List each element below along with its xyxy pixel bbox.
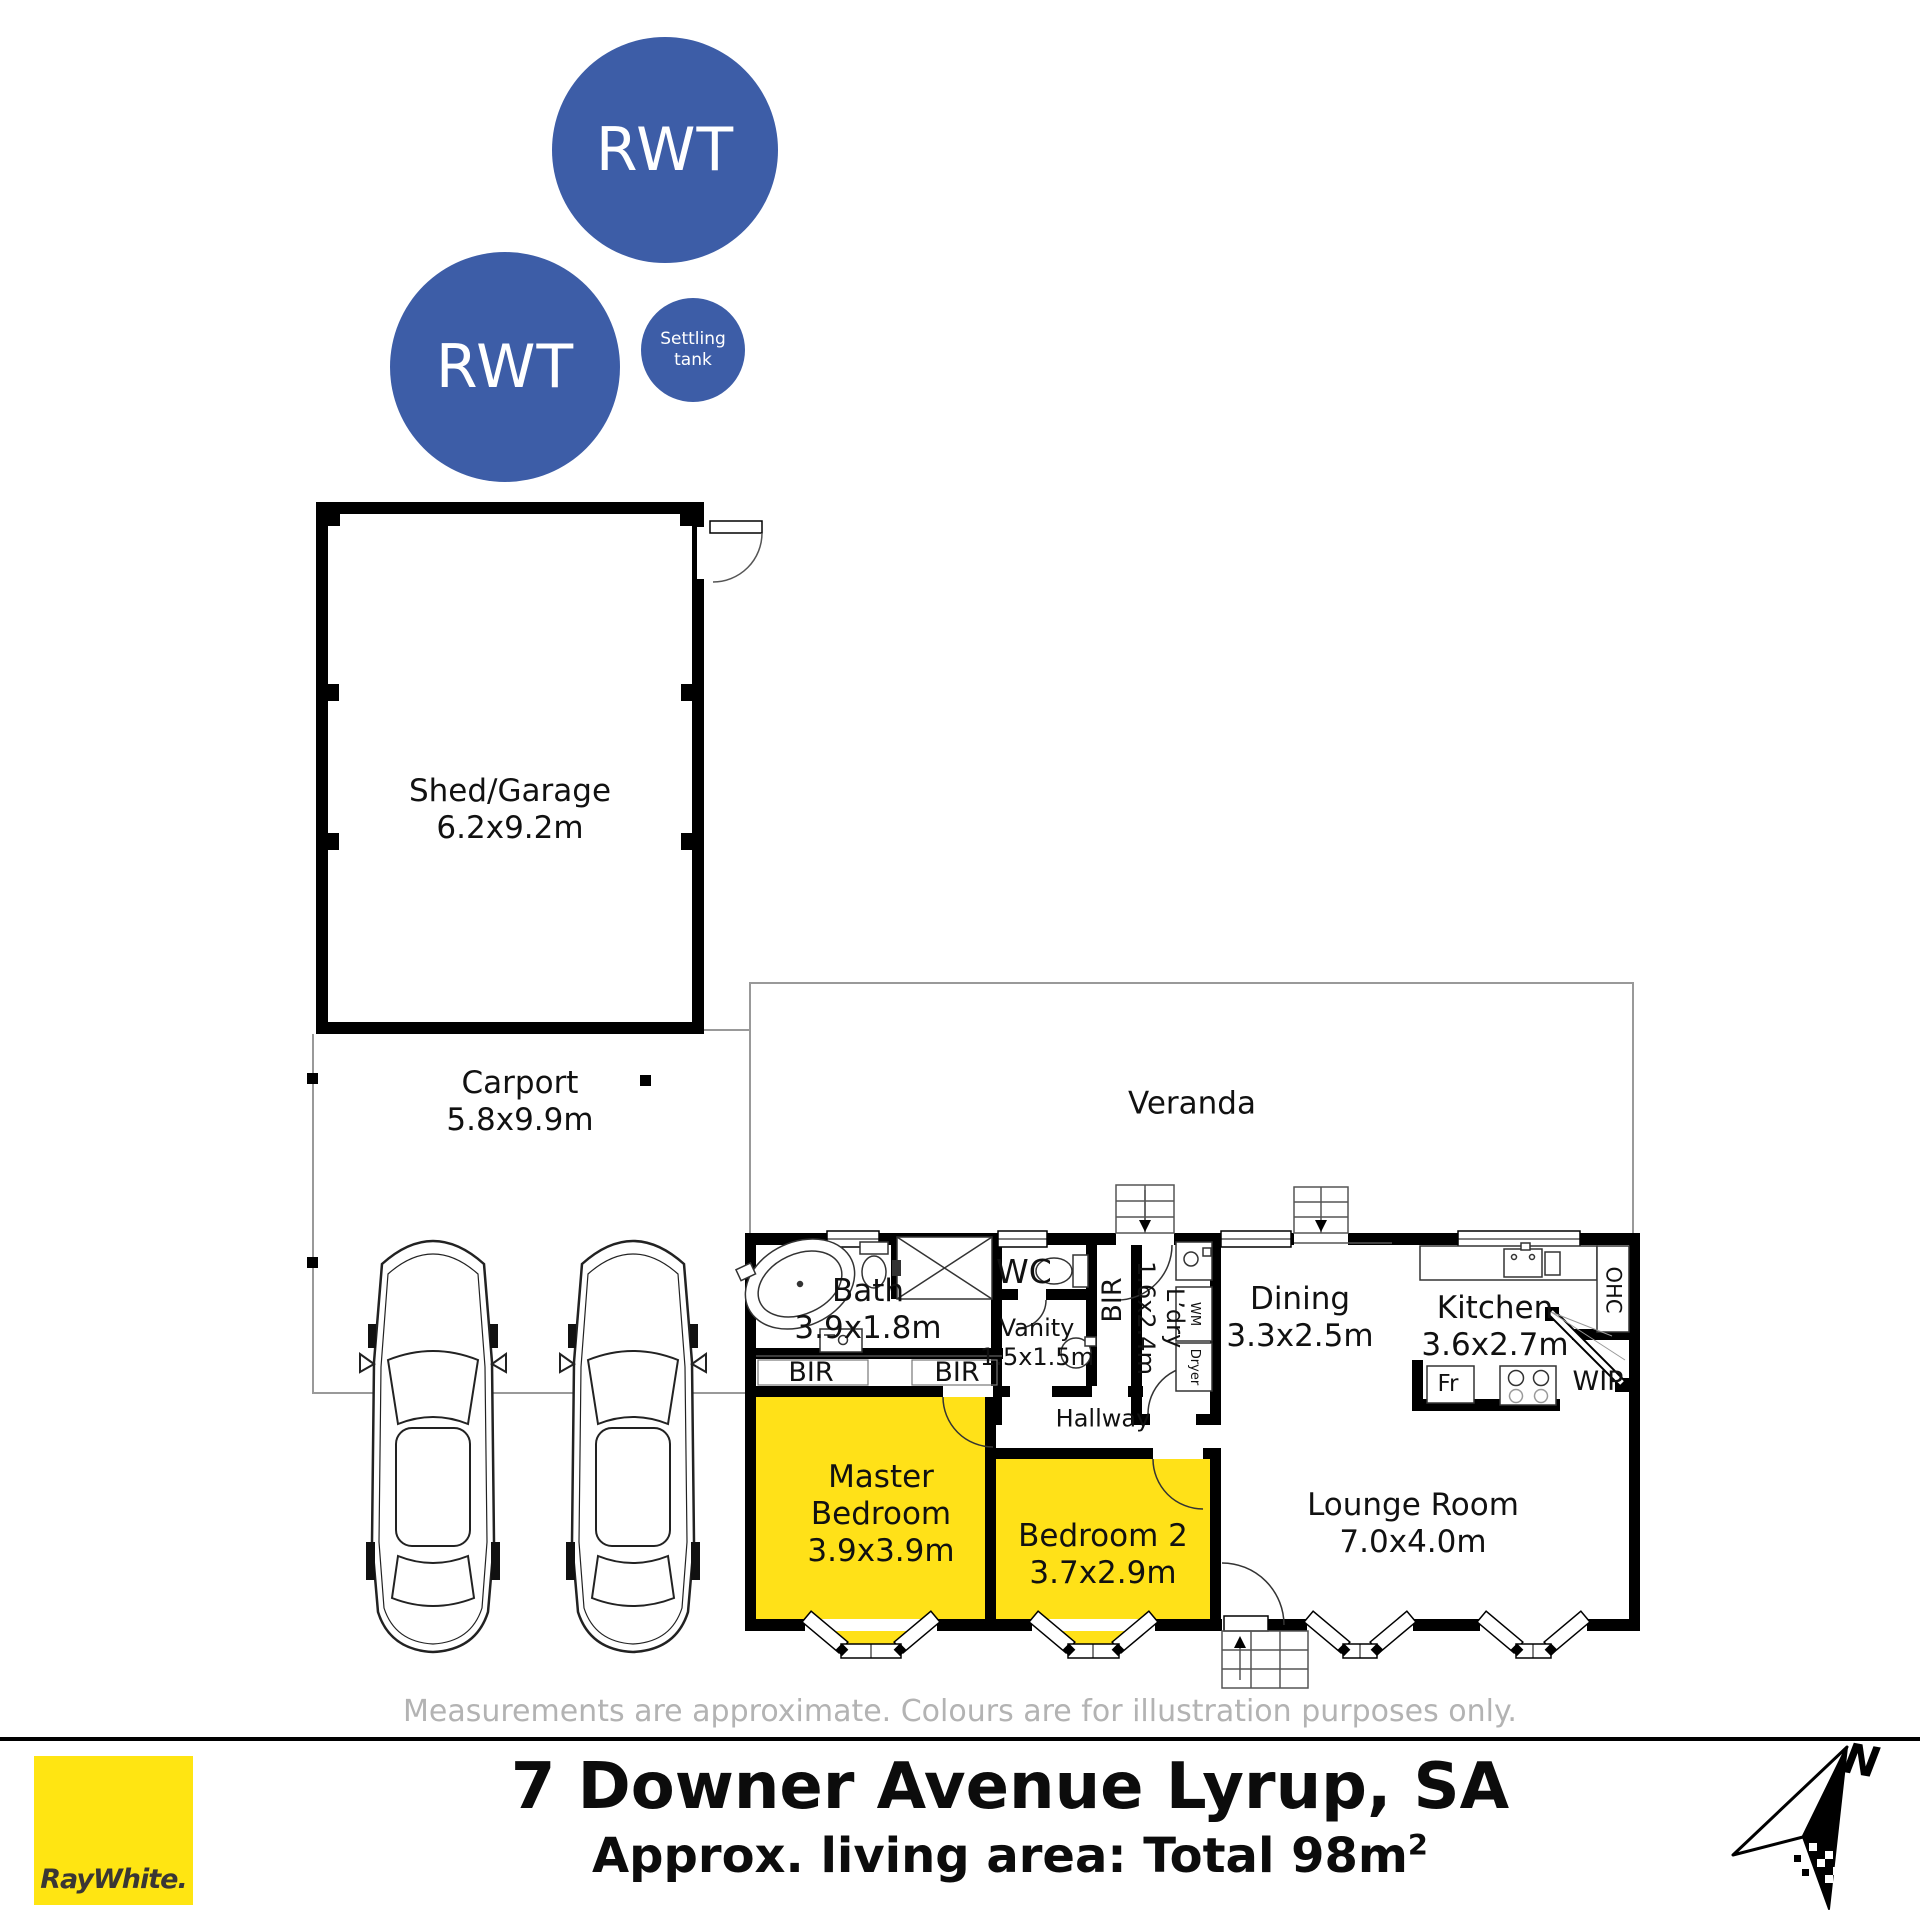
bir-label-3: BIR <box>1097 1277 1129 1322</box>
entry-steps <box>1222 1631 1308 1688</box>
bath-label: Bath 3.9x1.8m <box>794 1273 941 1347</box>
fridge-label: Fr <box>1437 1371 1458 1399</box>
car-left <box>360 1241 506 1652</box>
bedroom2-label: Bedroom 2 3.7x2.9m <box>1018 1518 1188 1592</box>
property-address: 7 Downer Avenue Lyrup, SA <box>440 1752 1580 1822</box>
ohc-label: OHC <box>1600 1267 1625 1314</box>
floorplan-page: RWT RWT Settling tank Shed/Garage 6.2x9.… <box>0 0 1920 1920</box>
disclaimer-text: Measurements are approximate. Colours ar… <box>0 1694 1920 1729</box>
footer-divider <box>0 1737 1920 1741</box>
rainwater-tank-1-label: RWT <box>596 115 734 185</box>
lounge-label: Lounge Room 7.0x4.0m <box>1307 1487 1519 1561</box>
shed-door-swing-arc <box>713 533 762 582</box>
hallway-label: Hallway <box>1056 1405 1151 1434</box>
rainwater-tank-2-label: RWT <box>436 332 574 402</box>
master-bedroom-label: Master Bedroom 3.9x3.9m <box>786 1459 976 1571</box>
wip-label: WIP <box>1573 1366 1624 1398</box>
vanity-label: Vanity 1.5x1.5m <box>980 1314 1094 1372</box>
shed-door-leaf <box>710 521 762 533</box>
bir-label-1: BIR <box>788 1357 833 1389</box>
dining-label: Dining 3.3x2.5m <box>1226 1281 1373 1355</box>
veranda-steps-left <box>1116 1185 1174 1233</box>
shed-label: Shed/Garage 6.2x9.2m <box>409 773 611 847</box>
rainwater-tank-1: RWT <box>552 37 778 263</box>
living-area-text: Approx. living area: Total 98m2 <box>440 1828 1580 1884</box>
wc-label: WC <box>996 1252 1052 1292</box>
veranda-steps-right <box>1294 1187 1348 1233</box>
settling-tank: Settling tank <box>641 298 745 402</box>
veranda-label: Veranda <box>1128 1085 1256 1122</box>
car-right <box>560 1241 706 1652</box>
kitchen-label: Kitchen 3.6x2.7m <box>1421 1290 1568 1364</box>
laundry-label: L’dry 1.6x2.4m <box>1131 1261 1189 1375</box>
settling-tank-label: Settling tank <box>660 329 726 371</box>
shed-door-opening <box>697 527 711 579</box>
raywhite-logo: RayWhite. <box>34 1756 193 1905</box>
carport-label: Carport 5.8x9.9m <box>446 1065 593 1139</box>
washing-machine-label: WM <box>1186 1302 1202 1326</box>
raywhite-logo-text: RayWhite. <box>40 1864 187 1895</box>
floorplan-drawing <box>0 0 1920 1920</box>
north-arrow <box>1733 1747 1847 1909</box>
dryer-label: Dryer <box>1186 1349 1202 1385</box>
address-block: 7 Downer Avenue Lyrup, SA Approx. living… <box>440 1752 1580 1884</box>
stove <box>1500 1366 1556 1405</box>
bir-label-2: BIR <box>934 1357 979 1389</box>
kitchen-bench <box>1420 1243 1597 1280</box>
entry-door-leaf <box>1224 1616 1268 1631</box>
rainwater-tank-2: RWT <box>390 252 620 482</box>
shed-garage-outline <box>322 508 762 1028</box>
